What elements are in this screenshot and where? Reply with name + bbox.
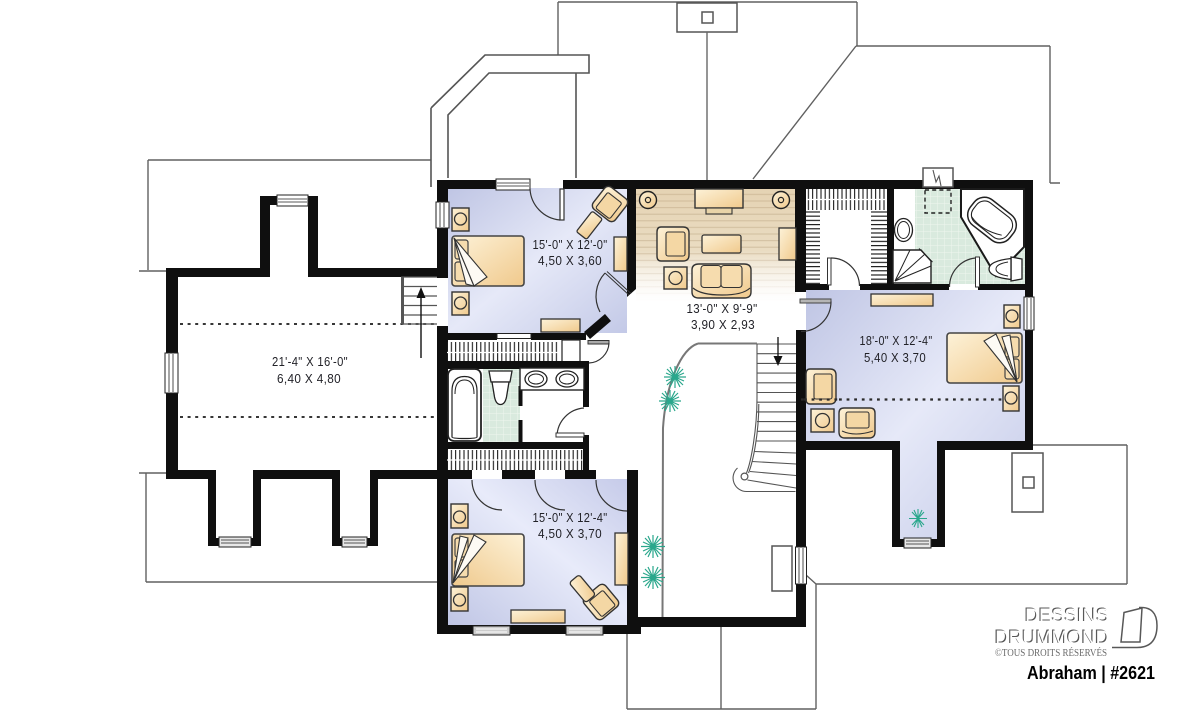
svg-text:DRUMMOND: DRUMMOND bbox=[995, 628, 1109, 649]
svg-text:15'-0" X 12'-4": 15'-0" X 12'-4" bbox=[533, 510, 608, 525]
svg-text:15'-0" X 12'-0": 15'-0" X 12'-0" bbox=[533, 237, 608, 252]
svg-text:6,40 X 4,80: 6,40 X 4,80 bbox=[277, 371, 341, 386]
svg-text:©TOUS DROITS RÉSERVÉS: ©TOUS DROITS RÉSERVÉS bbox=[995, 647, 1107, 659]
svg-text:4,50 X 3,70: 4,50 X 3,70 bbox=[538, 526, 602, 541]
svg-text:4,50 X 3,60: 4,50 X 3,60 bbox=[538, 253, 602, 268]
svg-text:21'-4" X 16'-0": 21'-4" X 16'-0" bbox=[272, 354, 348, 369]
svg-text:18'-0" X 12'-4": 18'-0" X 12'-4" bbox=[860, 333, 933, 348]
svg-text:DESSINS: DESSINS bbox=[1025, 606, 1109, 627]
svg-text:5,40 X 3,70: 5,40 X 3,70 bbox=[864, 350, 926, 365]
svg-text:Abraham | #2621: Abraham | #2621 bbox=[1027, 663, 1155, 683]
svg-text:3,90 X 2,93: 3,90 X 2,93 bbox=[691, 317, 755, 332]
svg-text:13'-0" X 9'-9": 13'-0" X 9'-9" bbox=[687, 301, 758, 316]
